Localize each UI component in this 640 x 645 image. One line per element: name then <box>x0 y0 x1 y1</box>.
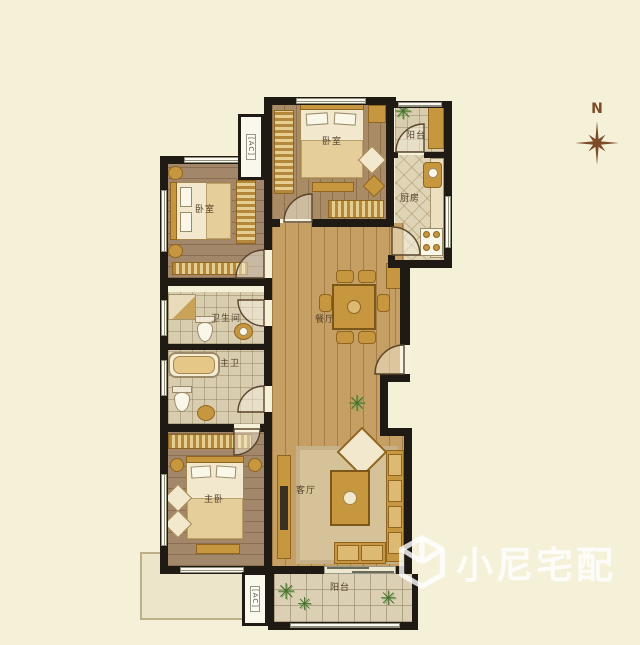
room-label-master-bathroom: 主卫 <box>200 358 260 370</box>
room-label-master-bedroom: 主卧 <box>184 494 244 506</box>
cube-logo-icon <box>396 534 448 590</box>
watermark-text: 小尼宅配 <box>456 535 616 589</box>
room-label-bedroom-top: 卧室 <box>302 136 362 148</box>
floor-plan: ✳ ✳ ✳ ✳ ✳ [AC] [AC] 卧室 阳台 厨房 卧室 卫生间 主卫 餐… <box>0 0 640 645</box>
room-label-balcony-top: 阳台 <box>392 130 440 142</box>
watermark: 小尼宅配 <box>396 534 616 590</box>
room-label-living: 客厅 <box>276 485 336 497</box>
compass-rose-icon <box>562 108 632 178</box>
room-label-kitchen: 厨房 <box>386 193 434 205</box>
room-label-bathroom: 卫生间 <box>196 313 256 325</box>
room-label-bedroom-left: 卧室 <box>175 204 235 216</box>
room-label-dining: 餐厅 <box>295 314 355 326</box>
room-label-balcony-bottom: 阳台 <box>310 582 370 594</box>
